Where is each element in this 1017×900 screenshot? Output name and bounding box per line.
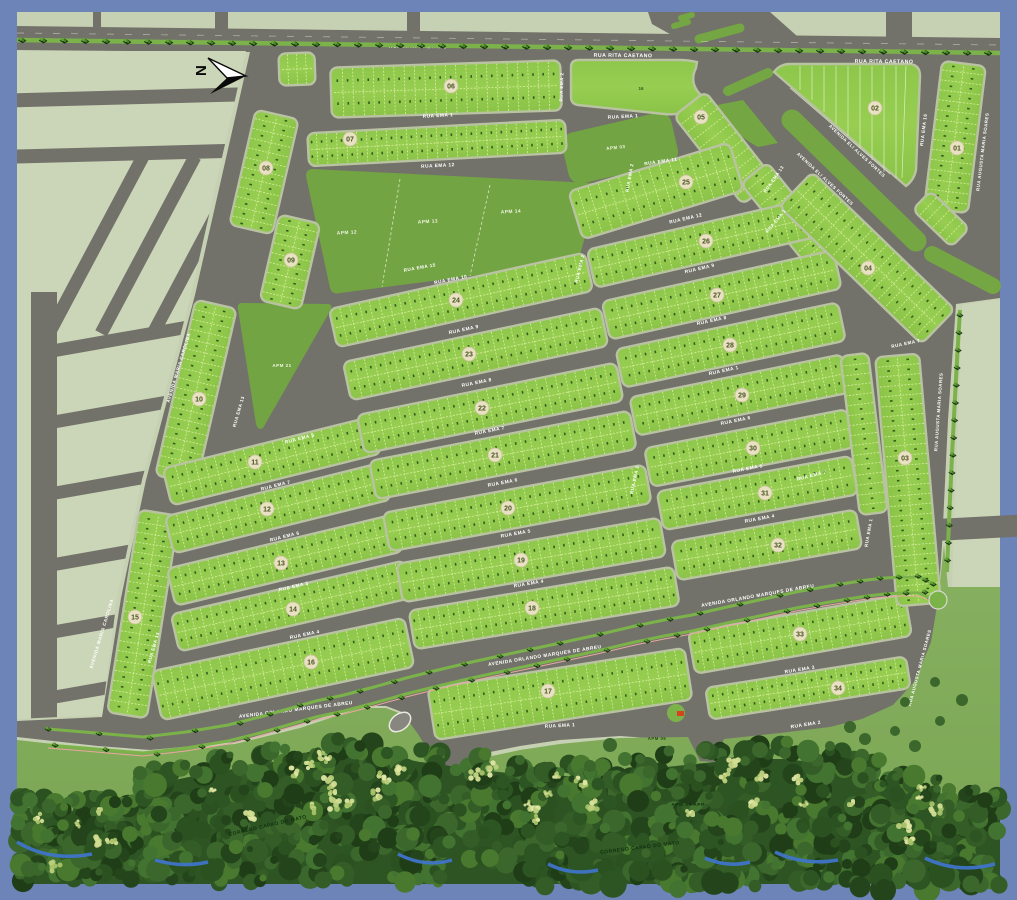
svg-text:08: 08: [262, 165, 270, 172]
svg-text:APM 12: APM 12: [337, 229, 358, 236]
svg-text:29: 29: [738, 392, 746, 399]
svg-text:26: 26: [702, 238, 710, 245]
svg-text:02: 02: [871, 105, 879, 112]
svg-text:30: 30: [749, 445, 757, 452]
svg-text:RUA EMA 2: RUA EMA 2: [558, 72, 564, 101]
svg-text:20: 20: [504, 505, 512, 512]
svg-text:32: 32: [774, 542, 782, 549]
svg-text:24: 24: [452, 297, 460, 304]
svg-text:16: 16: [307, 659, 315, 666]
svg-text:05: 05: [697, 114, 705, 121]
svg-text:34: 34: [834, 685, 842, 692]
svg-text:14: 14: [289, 606, 297, 613]
svg-text:31: 31: [761, 490, 769, 497]
svg-text:01: 01: [953, 145, 961, 152]
svg-text:09: 09: [287, 257, 295, 264]
svg-text:28: 28: [726, 342, 734, 349]
svg-text:06: 06: [447, 83, 455, 90]
svg-text:25: 25: [682, 179, 690, 186]
svg-text:33: 33: [796, 631, 804, 638]
svg-text:22: 22: [478, 405, 486, 412]
svg-text:APM 14: APM 14: [501, 208, 522, 215]
svg-text:11: 11: [251, 459, 259, 466]
svg-text:10: 10: [195, 396, 203, 403]
svg-text:27: 27: [713, 292, 721, 299]
svg-text:APM 07 APP: APM 07 APP: [671, 802, 705, 808]
svg-text:16: 16: [638, 86, 644, 91]
svg-text:04: 04: [864, 265, 872, 272]
svg-text:APM 21: APM 21: [272, 363, 291, 368]
svg-text:17: 17: [544, 688, 552, 695]
svg-text:15: 15: [131, 614, 139, 621]
svg-text:12: 12: [263, 506, 271, 513]
svg-text:03: 03: [901, 455, 909, 462]
svg-text:APM 13: APM 13: [418, 218, 439, 225]
svg-text:APM 06: APM 06: [648, 736, 667, 741]
svg-text:18: 18: [528, 605, 536, 612]
svg-text:21: 21: [491, 452, 499, 459]
svg-text:RUA RITA CAETANO: RUA RITA CAETANO: [855, 59, 914, 66]
svg-text:13: 13: [277, 560, 285, 567]
svg-text:N: N: [193, 65, 210, 76]
svg-text:RUA RITA CAETANO: RUA RITA CAETANO: [594, 53, 653, 60]
svg-text:23: 23: [465, 351, 473, 358]
svg-text:07: 07: [346, 136, 354, 143]
svg-text:19: 19: [517, 557, 525, 564]
